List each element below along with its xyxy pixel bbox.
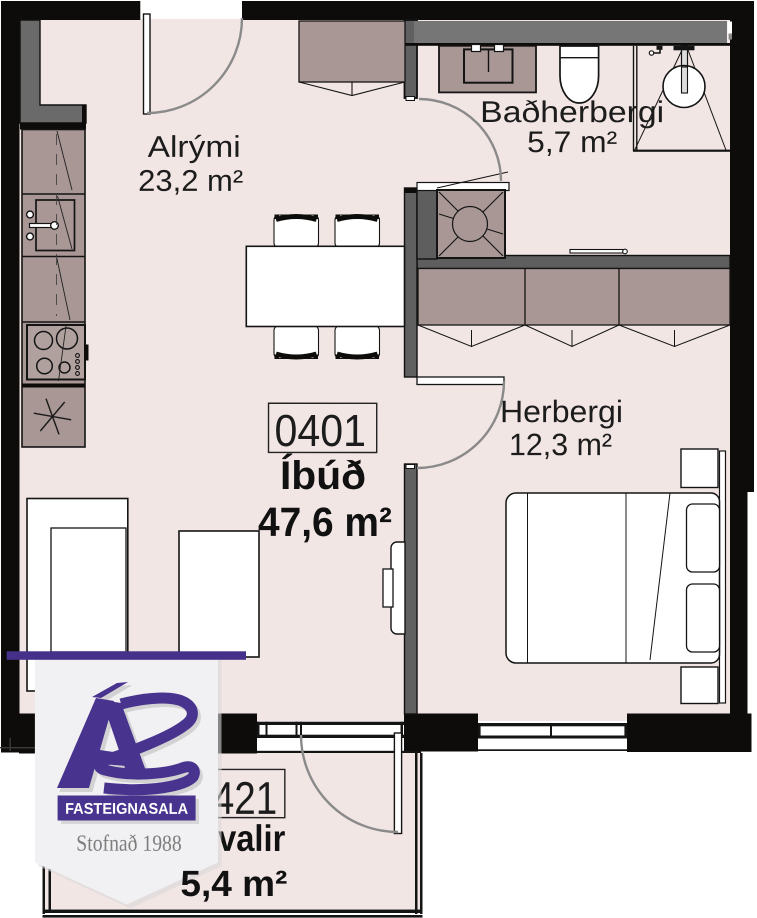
svg-text:12,3 m²: 12,3 m² [509, 427, 612, 462]
svg-text:Baðherbergi: Baðherbergi [480, 96, 664, 129]
svg-text:FASTEIGNASALA: FASTEIGNASALA [65, 801, 188, 818]
svg-text:Alrými: Alrými [148, 131, 241, 164]
svg-text:Íbúð: Íbúð [280, 453, 366, 498]
svg-text:47,6 m²: 47,6 m² [258, 499, 392, 545]
svg-text:23,2 m²: 23,2 m² [138, 165, 243, 198]
svg-text:0401: 0401 [275, 405, 367, 456]
svg-text:Herbergi: Herbergi [500, 394, 623, 429]
svg-text:5,4 m²: 5,4 m² [180, 863, 287, 904]
svg-text:Stofnað 1988: Stofnað 1988 [76, 831, 181, 856]
svg-text:5,7 m²: 5,7 m² [527, 126, 617, 159]
